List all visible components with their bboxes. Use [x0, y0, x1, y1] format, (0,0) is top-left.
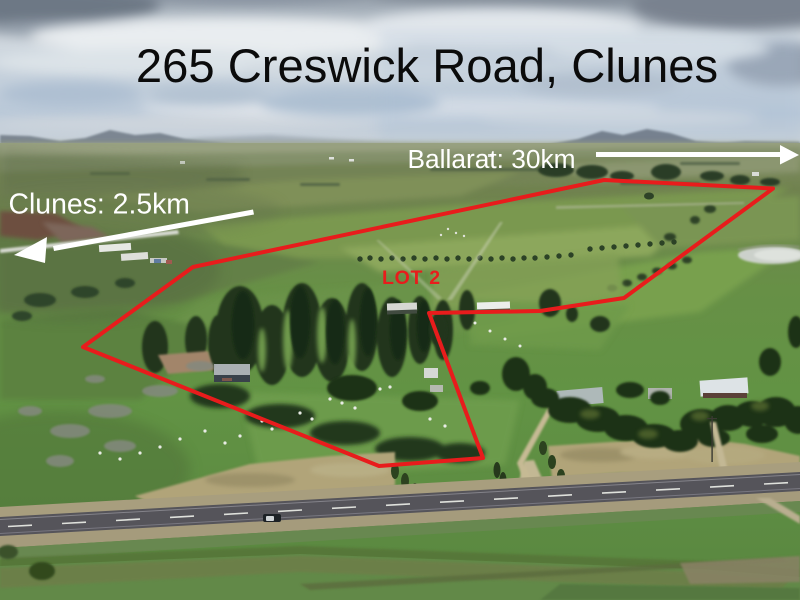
svg-text:LOT 2: LOT 2: [382, 267, 441, 289]
svg-text:Ballarat: 30km: Ballarat: 30km: [408, 144, 576, 174]
svg-text:Clunes: 2.5km: Clunes: 2.5km: [9, 189, 190, 221]
svg-text:265 Creswick Road, Clunes: 265 Creswick Road, Clunes: [136, 40, 718, 93]
